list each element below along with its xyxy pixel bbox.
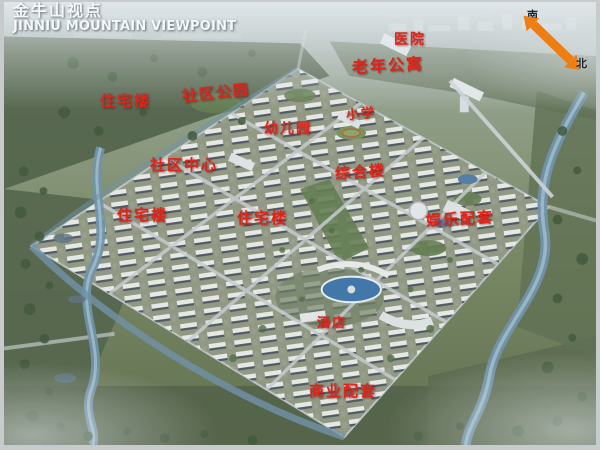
compass: 南 北 xyxy=(500,0,600,95)
slide-frame: 金牛山视点 JINNIU MOUNTAIN VIEWPOINT 南 北 医院老年… xyxy=(0,0,600,450)
compass-arrow-icon xyxy=(530,21,574,64)
page-title-chinese: 金牛山视点 xyxy=(13,2,236,20)
compass-north-label: 北 xyxy=(576,58,587,69)
page-title-english: JINNIU MOUNTAIN VIEWPOINT xyxy=(13,20,236,35)
title-block: 金牛山视点 JINNIU MOUNTAIN VIEWPOINT xyxy=(13,2,236,35)
